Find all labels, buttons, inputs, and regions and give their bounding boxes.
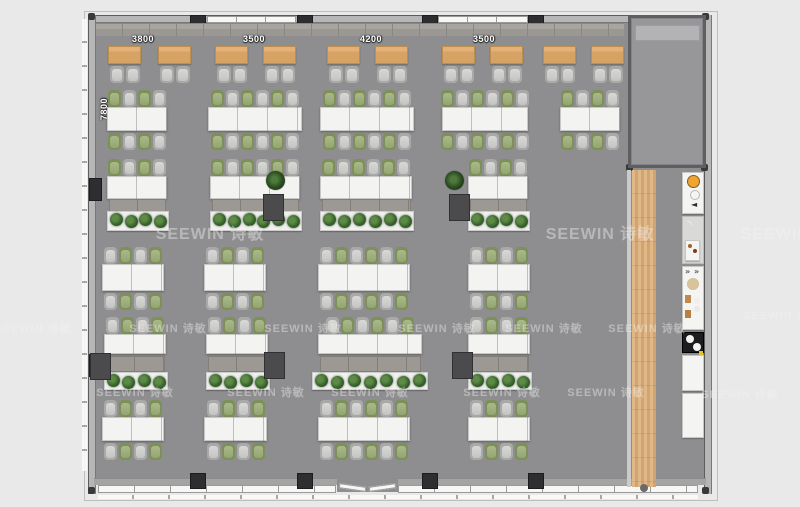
watermark: SEEWIN 诗敏	[156, 220, 265, 244]
watermark: SEEWIN 诗敏	[743, 307, 800, 323]
watermark: SEEWIN 诗敏	[398, 320, 475, 336]
watermark-layer: SEEWIN 诗敏SEEWIN 诗敏SEEWIN 诗敏SEEWIN 诗敏SEEW…	[0, 0, 800, 507]
watermark: SEEWIN 诗敏	[331, 384, 408, 400]
watermark: SEEWIN 诗敏	[129, 320, 206, 336]
watermark: SEEWIN 诗敏	[608, 320, 685, 336]
watermark: SEEWIN 诗敏	[741, 220, 800, 244]
watermark: SEEWIN 诗敏	[546, 220, 655, 244]
watermark: SEEWIN 诗敏	[96, 384, 173, 400]
watermark: SEEWIN 诗敏	[0, 320, 72, 336]
watermark: SEEWIN 诗敏	[567, 384, 644, 400]
watermark: SEEWIN 诗敏	[505, 320, 582, 336]
watermark: SEEWIN 诗敏	[227, 384, 304, 400]
watermark: SEEWIN 诗敏	[463, 384, 540, 400]
watermark: SEEWIN 诗敏	[701, 386, 778, 402]
watermark: SEEWIN 诗敏	[264, 320, 341, 336]
floor-plan-canvas: 38003500420035007800◄◝»» SEEWIN 诗敏SEEWIN…	[0, 0, 800, 507]
